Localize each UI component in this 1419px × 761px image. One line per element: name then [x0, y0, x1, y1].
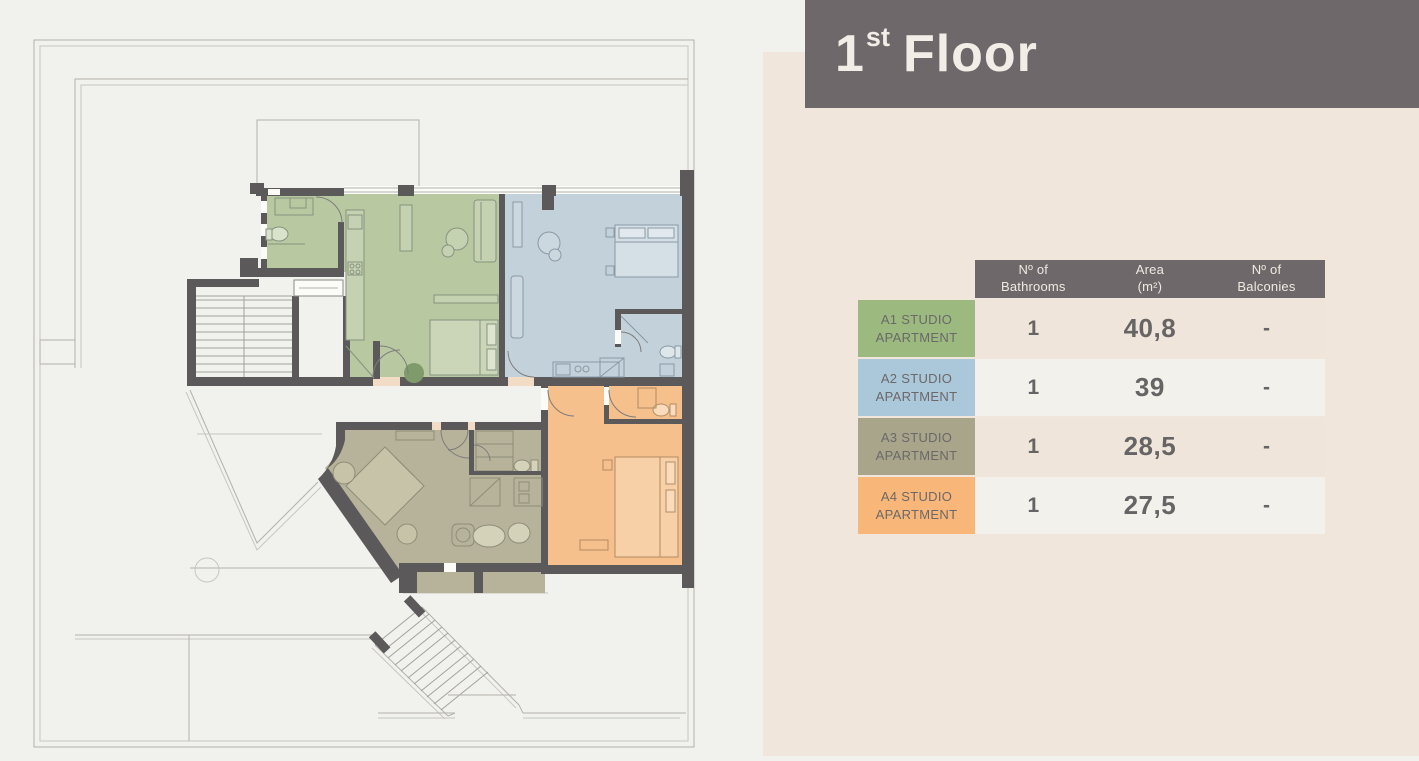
- a2-area: 39: [1092, 359, 1209, 416]
- label-a3: A3 STUDIO APARTMENT: [858, 418, 975, 475]
- floor-plan-drawing: [0, 0, 763, 756]
- header-balconies: Nº of Balconies: [1208, 260, 1325, 298]
- table-row-a2: A2 STUDIO APARTMENT 1 39 -: [858, 359, 1325, 416]
- label-a1: A1 STUDIO APARTMENT: [858, 300, 975, 357]
- floor-word: Floor: [903, 24, 1038, 84]
- unit-a2-floor: [502, 193, 684, 379]
- a2-bathrooms: 1: [975, 359, 1092, 416]
- stairwell-stairs: [196, 296, 292, 377]
- floor-plan: [0, 0, 763, 756]
- apartment-table: Nº of Bathrooms Area (m²) Nº of Balconie…: [858, 260, 1325, 534]
- floor-number: 1: [835, 24, 865, 84]
- a1-area: 40,8: [1092, 300, 1209, 357]
- table-row-a1: A1 STUDIO APARTMENT 1 40,8 -: [858, 300, 1325, 357]
- header-bathrooms: Nº of Bathrooms: [975, 260, 1092, 298]
- roof-terrace: [257, 120, 419, 193]
- a4-bathrooms: 1: [975, 477, 1092, 534]
- a3-area: 28,5: [1092, 418, 1209, 475]
- a3-bathrooms: 1: [975, 418, 1092, 475]
- floor-title-banner: 1stFloor: [805, 0, 1419, 108]
- a2-balconies: -: [1208, 359, 1325, 416]
- a3-balconies: -: [1208, 418, 1325, 475]
- table-row-a3: A3 STUDIO APARTMENT 1 28,5 -: [858, 418, 1325, 475]
- table-header-row: Nº of Bathrooms Area (m²) Nº of Balconie…: [975, 260, 1325, 298]
- a4-area: 27,5: [1092, 477, 1209, 534]
- floor-ordinal-suffix: st: [866, 22, 890, 53]
- external-staircase: [369, 595, 686, 719]
- header-area: Area (m²): [1092, 260, 1209, 298]
- label-a2: A2 STUDIO APARTMENT: [858, 359, 975, 416]
- a1-balconies: -: [1208, 300, 1325, 357]
- label-a4: A4 STUDIO APARTMENT: [858, 477, 975, 534]
- a4-balconies: -: [1208, 477, 1325, 534]
- table-row-a4: A4 STUDIO APARTMENT 1 27,5 -: [858, 477, 1325, 534]
- glass-facade: [344, 186, 682, 194]
- a1-bathrooms: 1: [975, 300, 1092, 357]
